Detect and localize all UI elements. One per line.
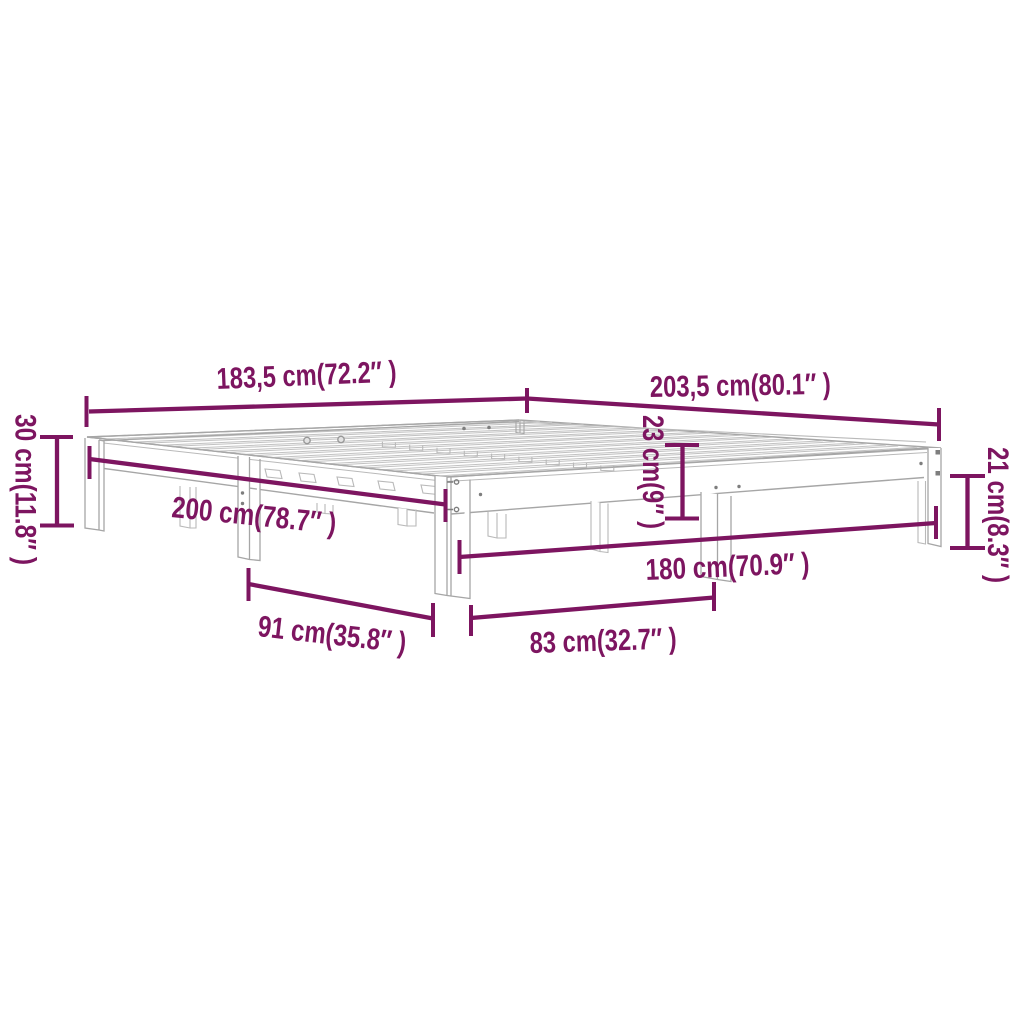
svg-text:83 cm(32.7″ ): 83 cm(32.7″ ) <box>529 622 677 660</box>
svg-text:23 cm(9″ ): 23 cm(9″ ) <box>636 415 669 529</box>
svg-text:203,5 cm(80.1″ ): 203,5 cm(80.1″ ) <box>650 368 832 404</box>
svg-text:21 cm(8.3″ ): 21 cm(8.3″ ) <box>981 447 1014 583</box>
svg-text:30 cm(11.8″ ): 30 cm(11.8″ ) <box>9 414 42 565</box>
svg-text:183,5 cm(72.2″ ): 183,5 cm(72.2″ ) <box>216 355 397 396</box>
svg-text:180 cm(70.9″ ): 180 cm(70.9″ ) <box>645 547 810 587</box>
svg-text:91 cm(35.8″ ): 91 cm(35.8″ ) <box>256 610 408 660</box>
